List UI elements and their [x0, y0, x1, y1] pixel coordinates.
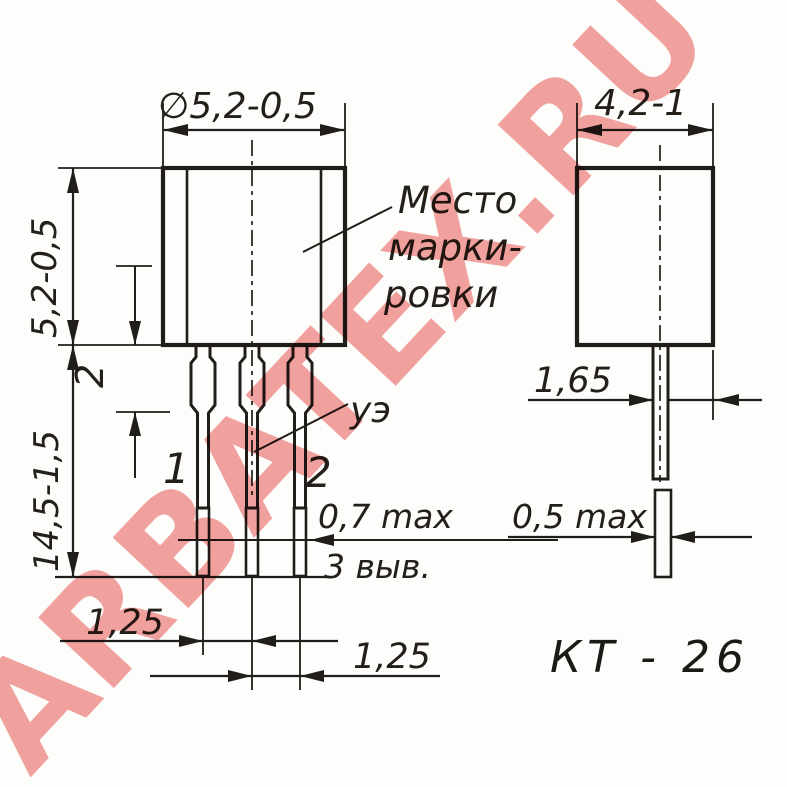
- arrowhead: [67, 168, 79, 193]
- arrowhead: [671, 531, 695, 543]
- dim-lead-offset-label: 1,65: [534, 361, 612, 401]
- arrowhead: [320, 124, 345, 136]
- dim-shoulder-label: 2: [68, 364, 112, 388]
- arrowhead: [252, 635, 276, 647]
- dim-lead-thickness-label: 0,7 max: [318, 497, 453, 536]
- kt26-package-drawing: ∅5,2-0,5 5,2-0,5 14,5-1,5 2 1 2 уэ Место…: [0, 0, 787, 787]
- arrowhead: [688, 124, 713, 136]
- dim-pitch-right-label: 1,25: [353, 637, 431, 677]
- dim-total-height-label: 14,5-1,5: [27, 430, 67, 572]
- arrowhead: [129, 321, 141, 345]
- side-lead-tip: [655, 490, 671, 577]
- arrowhead: [228, 670, 252, 682]
- arrowhead: [300, 670, 324, 682]
- dim-width-label: ∅5,2-0,5: [158, 86, 317, 127]
- arrowhead: [129, 412, 141, 436]
- arrowhead: [629, 394, 653, 406]
- dim-body-height-label: 5,2-0,5: [25, 218, 65, 338]
- lead-count-note: 3 выв.: [324, 547, 431, 586]
- drawing-canvas: ∅5,2-0,5 5,2-0,5 14,5-1,5 2 1 2 уэ Место…: [0, 0, 787, 787]
- arrowhead: [67, 320, 79, 345]
- arrowhead: [715, 394, 739, 406]
- dim-lead-width-label: 0,5 max: [512, 497, 647, 536]
- package-name-label: КТ - 26: [550, 632, 750, 683]
